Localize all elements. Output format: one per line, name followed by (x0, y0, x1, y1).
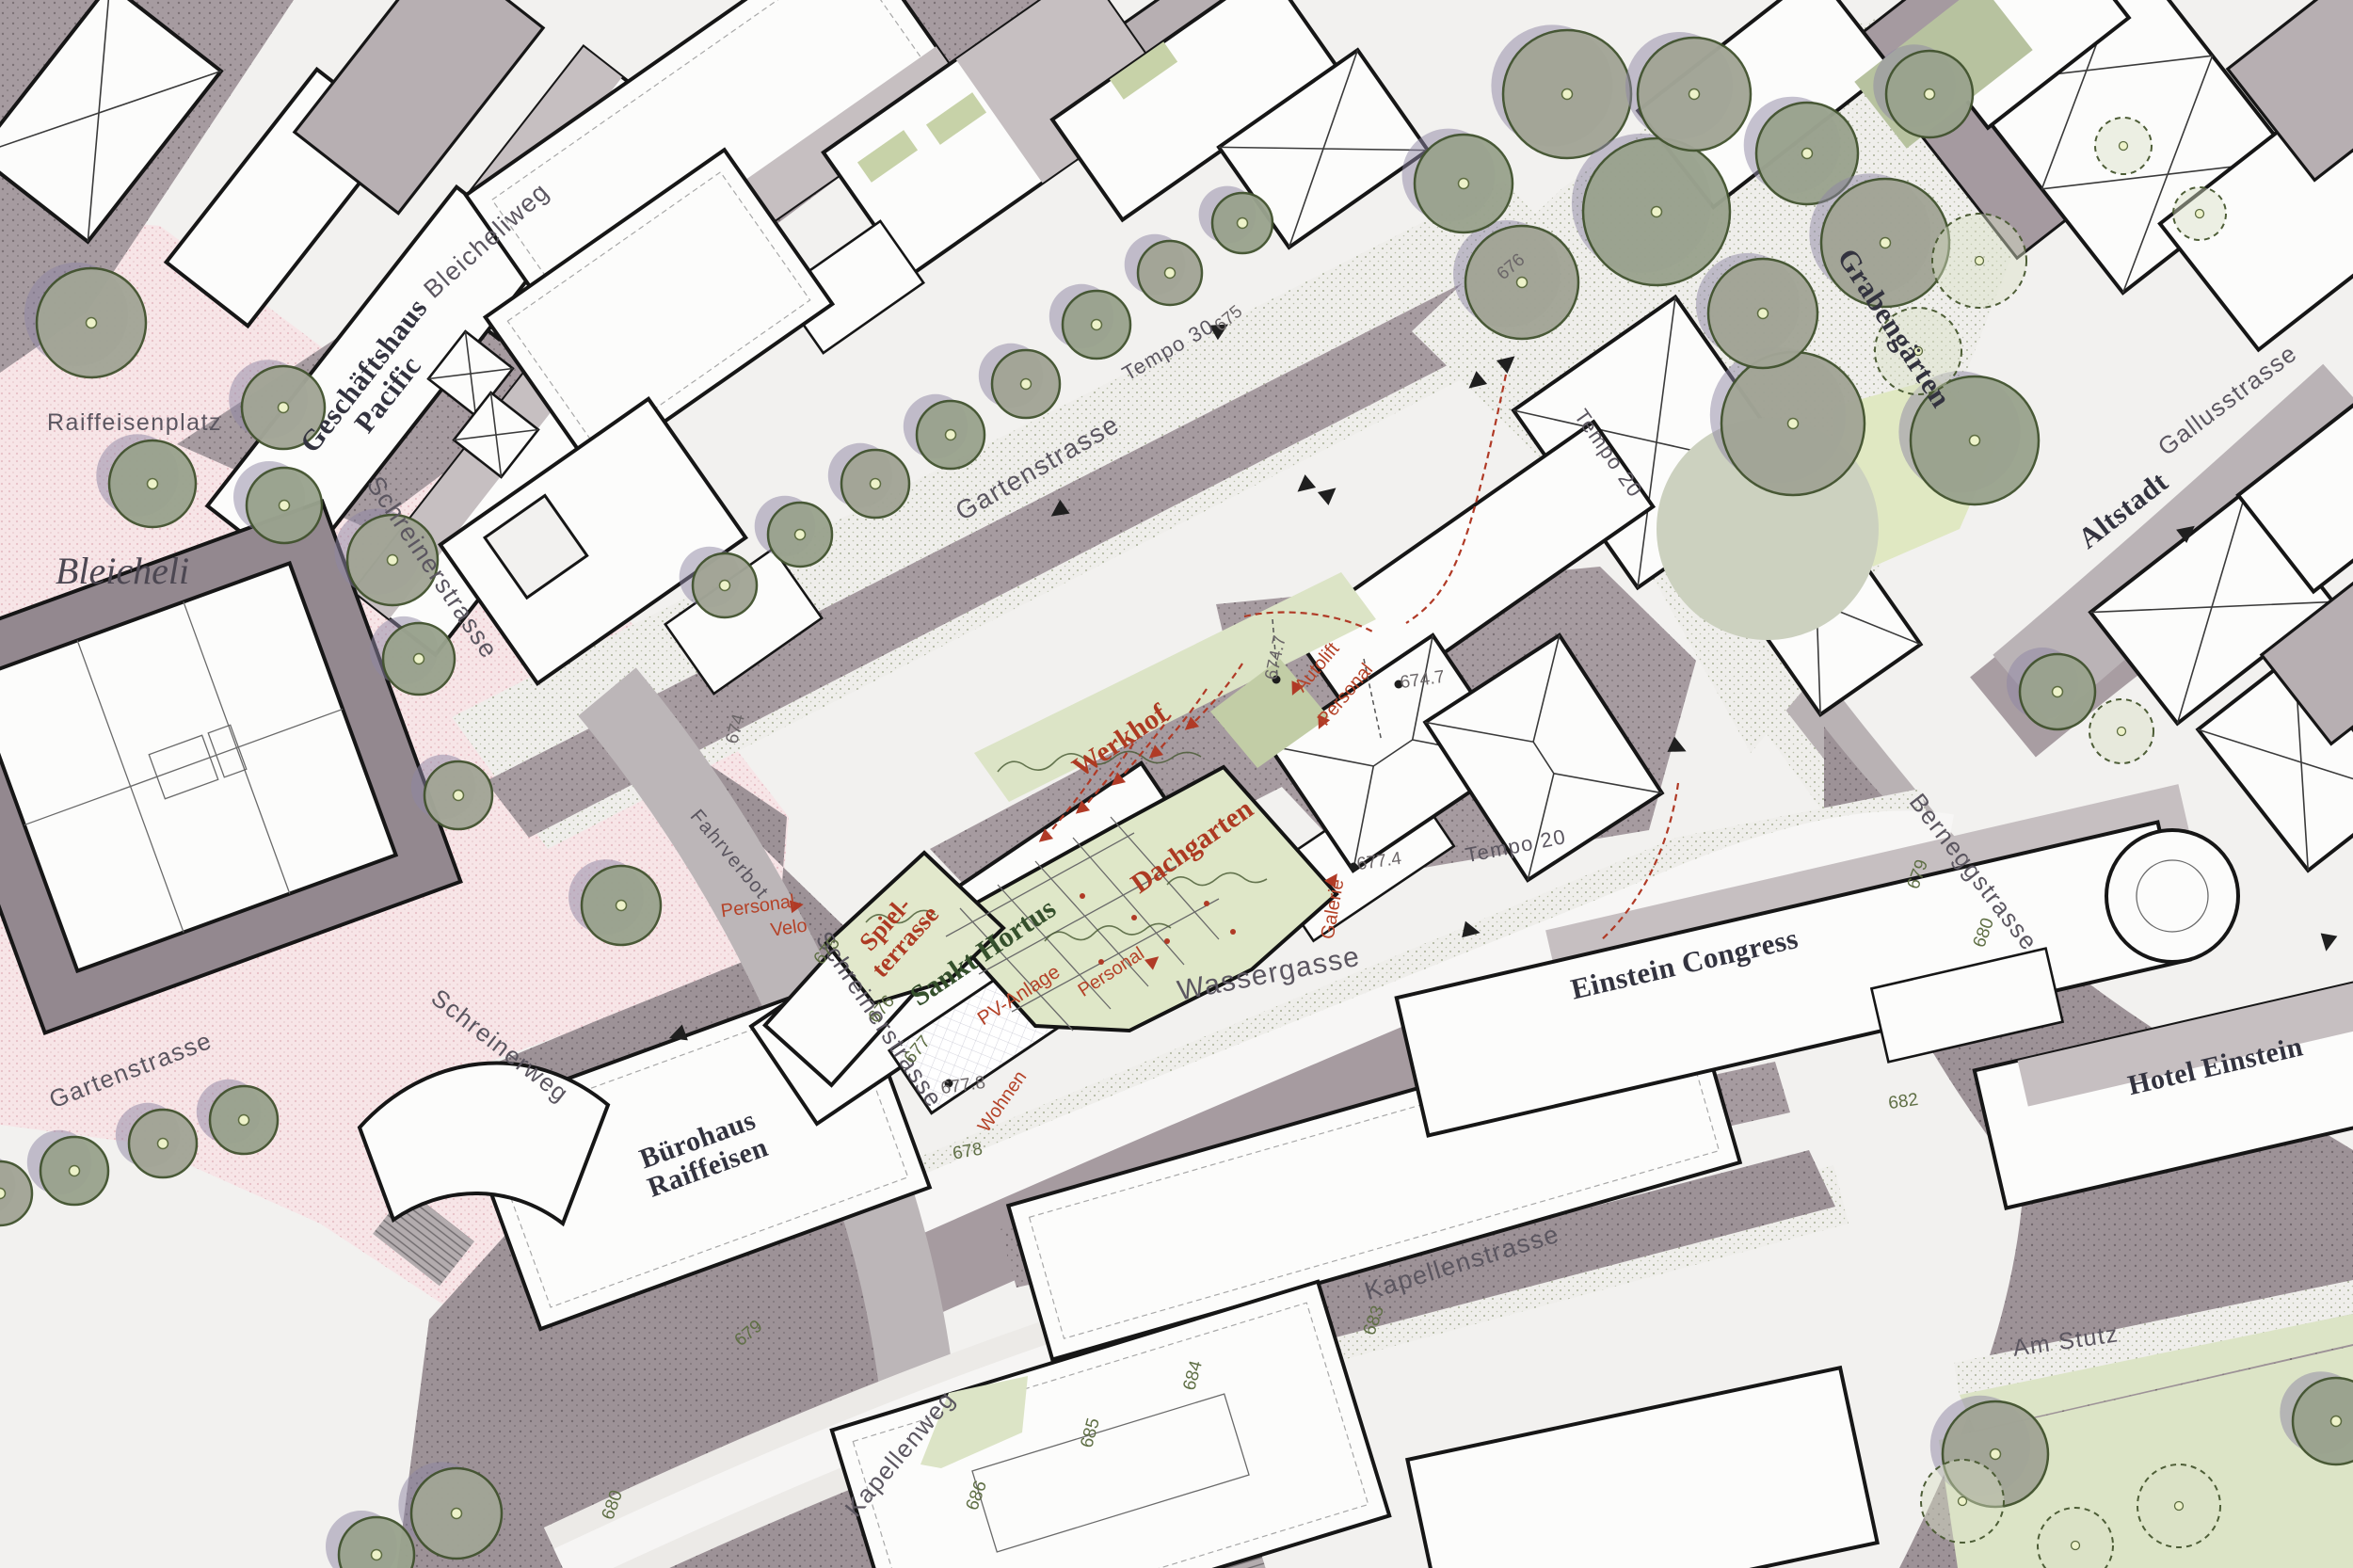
site-plan-svg: BleicheliwegSchreinerstrasseGartenstrass… (0, 0, 2353, 1568)
tree-deciduous (2173, 187, 2226, 240)
map-label-raiffeisenplatz: Raiffeisenplatz (47, 409, 222, 436)
map-label-bleicheli: Bleicheli (56, 550, 189, 592)
tree-deciduous (1932, 214, 2026, 308)
site-plan-map: BleicheliwegSchreinerstrasseGartenstrass… (0, 0, 2353, 1568)
tree-deciduous (1921, 1460, 2004, 1543)
tree-deciduous (2089, 699, 2153, 763)
tree-deciduous (2137, 1464, 2220, 1547)
tree-deciduous (2095, 118, 2152, 174)
map-label-682: 682 (1887, 1090, 1919, 1113)
building-einstein-tower (2106, 830, 2238, 962)
